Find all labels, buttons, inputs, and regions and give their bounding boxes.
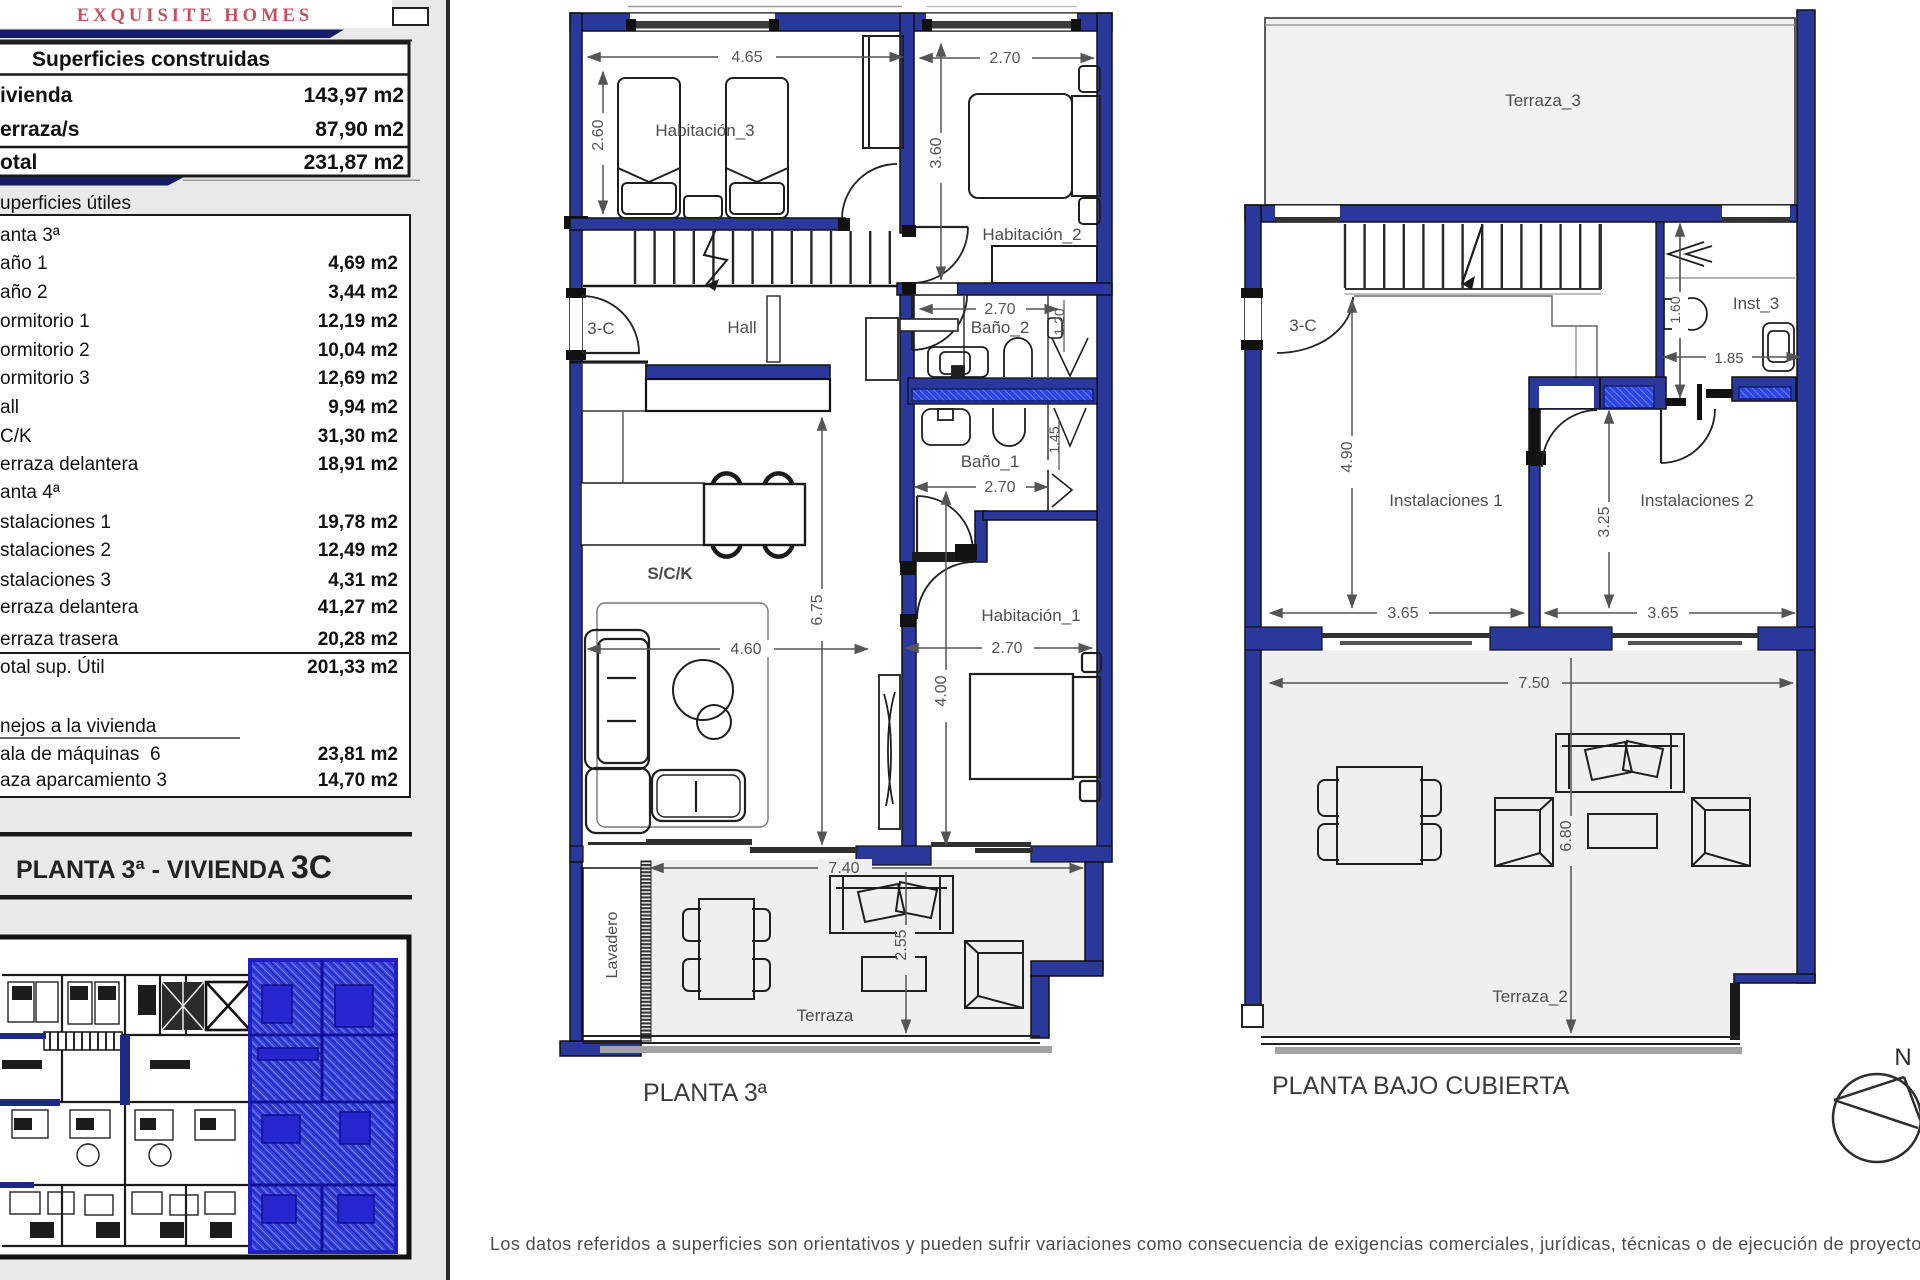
svg-text:Inst_3: Inst_3 [1733, 294, 1779, 313]
svg-text:erraza trasera: erraza trasera [0, 629, 119, 650]
svg-text:ivienda: ivienda [0, 84, 73, 107]
svg-text:87,90 m2: 87,90 m2 [315, 118, 404, 141]
svg-text:uperficies útiles: uperficies útiles [0, 193, 131, 214]
svg-text:3.25: 3.25 [1596, 506, 1613, 537]
svg-text:12,49 m2: 12,49 m2 [318, 540, 398, 561]
svg-text:2.55: 2.55 [893, 929, 910, 960]
svg-text:3.60: 3.60 [928, 137, 945, 168]
svg-text:EXQUISITE HOMES: EXQUISITE HOMES [77, 6, 313, 26]
svg-text:9,94 m2: 9,94 m2 [328, 397, 398, 418]
svg-text:Terraza_2: Terraza_2 [1492, 987, 1568, 1006]
svg-text:19,78 m2: 19,78 m2 [318, 512, 398, 533]
svg-text:Habitación_2: Habitación_2 [982, 225, 1081, 244]
svg-text:año 2: año 2 [0, 282, 48, 303]
svg-text:all: all [0, 397, 19, 418]
svg-text:4,31 m2: 4,31 m2 [328, 570, 398, 591]
svg-text:Hall: Hall [727, 318, 756, 337]
svg-text:Superficies construidas: Superficies construidas [32, 48, 270, 71]
svg-text:PLANTA BAJO CUBIERTA: PLANTA BAJO CUBIERTA [1272, 1072, 1570, 1100]
svg-text:2.70: 2.70 [991, 640, 1022, 657]
svg-text:6.75: 6.75 [809, 594, 826, 625]
svg-text:otal: otal [0, 151, 37, 174]
svg-text:14,70 m2: 14,70 m2 [318, 770, 398, 791]
svg-text:4.90: 4.90 [1339, 441, 1356, 472]
svg-text:2.60: 2.60 [590, 119, 607, 150]
svg-text:S/C/K: S/C/K [647, 564, 693, 583]
svg-text:3-C: 3-C [587, 319, 614, 338]
svg-text:3.65: 3.65 [1387, 605, 1418, 622]
svg-text:Terraza_3: Terraza_3 [1505, 91, 1581, 110]
svg-text:23,81 m2: 23,81 m2 [318, 744, 398, 765]
svg-text:2.70: 2.70 [989, 50, 1020, 67]
svg-text:7.40: 7.40 [828, 860, 859, 877]
svg-text:Terraza: Terraza [797, 1006, 854, 1025]
svg-text:2.70: 2.70 [984, 301, 1015, 318]
svg-text:C/K: C/K [0, 426, 32, 447]
svg-text:1.85: 1.85 [1714, 350, 1743, 367]
svg-text:erraza delantera: erraza delantera [0, 597, 139, 618]
svg-text:231,87 m2: 231,87 m2 [304, 151, 404, 174]
svg-text:año 1: año 1 [0, 253, 48, 274]
svg-text:Lavadero: Lavadero [604, 912, 621, 979]
svg-text:PLANTA 3ª: PLANTA 3ª [643, 1079, 768, 1107]
svg-text:erraza/s: erraza/s [0, 118, 79, 141]
svg-text:N: N [1894, 1044, 1911, 1071]
svg-text:20,28 m2: 20,28 m2 [318, 629, 398, 650]
svg-text:1.20: 1.20 [1051, 308, 1067, 335]
svg-text:1.45: 1.45 [1046, 426, 1062, 453]
svg-text:4.65: 4.65 [731, 49, 762, 66]
svg-text:stalaciones 1: stalaciones 1 [0, 512, 111, 533]
svg-text:143,97 m2: 143,97 m2 [304, 84, 404, 107]
svg-text:4,69 m2: 4,69 m2 [328, 253, 398, 274]
svg-text:41,27 m2: 41,27 m2 [318, 597, 398, 618]
svg-text:12,19 m2: 12,19 m2 [318, 311, 398, 332]
svg-text:Instalaciones 2: Instalaciones 2 [1640, 491, 1753, 510]
svg-text:Los datos referidos a superfic: Los datos referidos a superficies son or… [490, 1234, 1920, 1254]
svg-text:stalaciones 2: stalaciones 2 [0, 540, 111, 561]
svg-text:12,69 m2: 12,69 m2 [318, 368, 398, 389]
svg-text:Habitación_3: Habitación_3 [655, 121, 754, 140]
svg-text:3.65: 3.65 [1647, 605, 1678, 622]
svg-text:18,91 m2: 18,91 m2 [318, 454, 398, 475]
svg-text:ala de máquinas 6: ala de máquinas 6 [0, 744, 161, 765]
svg-text:nejos a la vivienda: nejos a la vivienda [0, 716, 157, 737]
svg-text:7.50: 7.50 [1518, 675, 1549, 692]
svg-text:ormitorio 3: ormitorio 3 [0, 368, 90, 389]
svg-text:Baño_1: Baño_1 [961, 452, 1020, 471]
svg-text:3,44 m2: 3,44 m2 [328, 282, 398, 303]
svg-text:Instalaciones 1: Instalaciones 1 [1389, 491, 1502, 510]
svg-text:4.60: 4.60 [730, 641, 761, 658]
svg-text:2.70: 2.70 [984, 479, 1015, 496]
svg-text:ormitorio 1: ormitorio 1 [0, 311, 90, 332]
svg-text:4.00: 4.00 [933, 675, 950, 706]
svg-text:anta 3ª: anta 3ª [0, 225, 61, 246]
svg-text:31,30 m2: 31,30 m2 [318, 426, 398, 447]
svg-text:1.60: 1.60 [1667, 296, 1683, 323]
svg-text:stalaciones 3: stalaciones 3 [0, 570, 111, 591]
svg-text:anta 4ª: anta 4ª [0, 482, 61, 503]
svg-text:ormitorio 2: ormitorio 2 [0, 340, 90, 361]
svg-text:3-C: 3-C [1289, 316, 1316, 335]
svg-text:erraza delantera: erraza delantera [0, 454, 139, 475]
svg-text:Habitación_1: Habitación_1 [981, 606, 1080, 625]
svg-text:10,04 m2: 10,04 m2 [318, 340, 398, 361]
svg-text:otal sup. Útil: otal sup. Útil [0, 656, 105, 678]
svg-text:6.80: 6.80 [1558, 820, 1575, 851]
svg-text:201,33 m2: 201,33 m2 [307, 657, 398, 678]
svg-text:aza aparcamiento 3: aza aparcamiento 3 [0, 770, 167, 791]
svg-text:Baño_2: Baño_2 [971, 318, 1030, 337]
